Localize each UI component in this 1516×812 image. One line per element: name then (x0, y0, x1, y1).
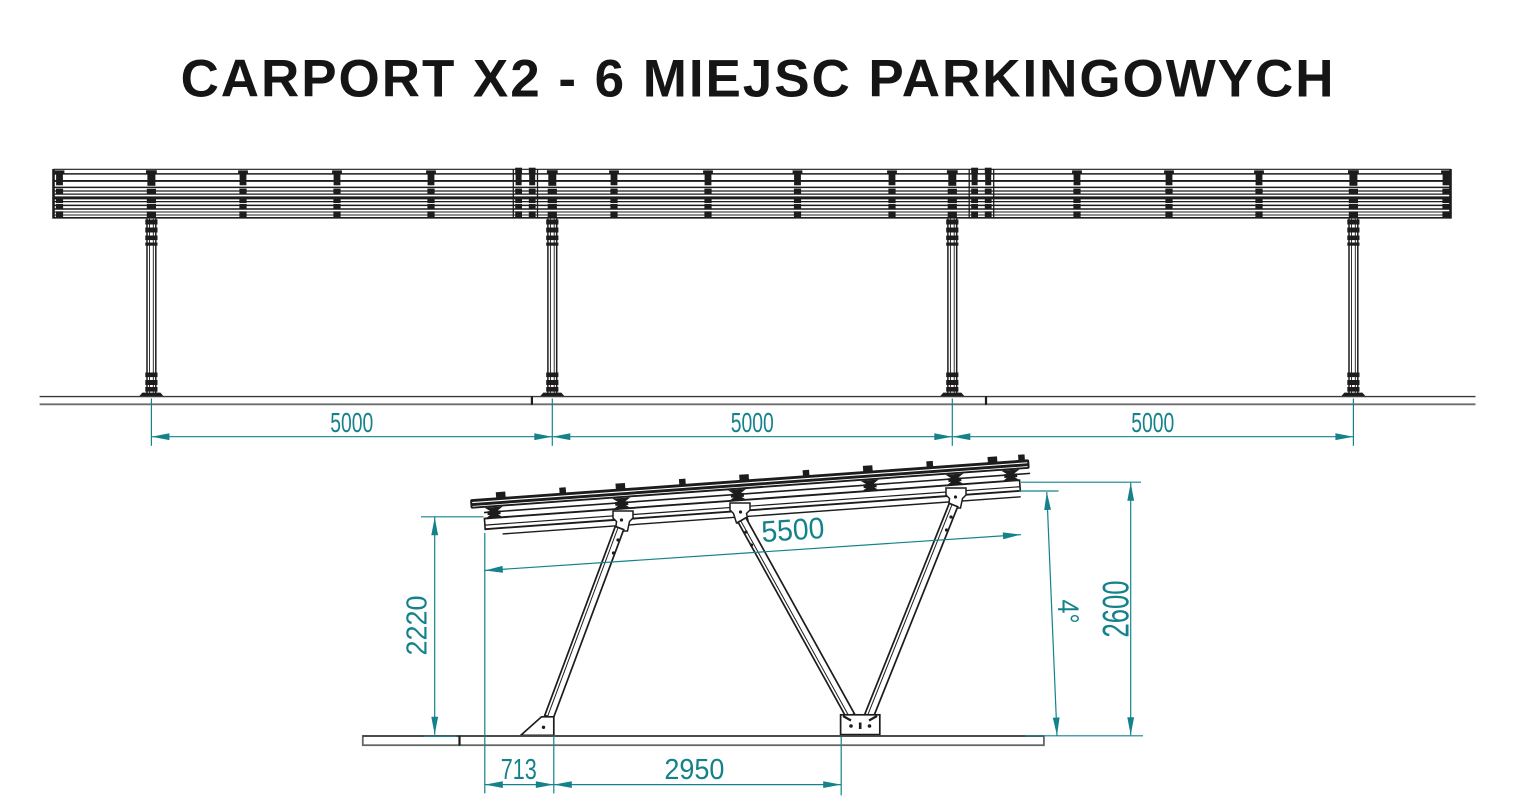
svg-text:5000: 5000 (731, 407, 774, 438)
svg-text:2950: 2950 (664, 754, 724, 786)
svg-text:5000: 5000 (1131, 407, 1174, 438)
svg-text:5500: 5500 (760, 512, 825, 549)
svg-text:5000: 5000 (330, 407, 373, 438)
svg-text:2220: 2220 (402, 596, 434, 656)
svg-text:2600: 2600 (1096, 581, 1137, 638)
svg-text:4°: 4° (1051, 600, 1084, 624)
svg-text:CARPORT X2 - 6 MIEJSC PARKINGO: CARPORT X2 - 6 MIEJSC PARKINGOWYCH (181, 50, 1336, 109)
svg-text:713: 713 (501, 754, 537, 786)
